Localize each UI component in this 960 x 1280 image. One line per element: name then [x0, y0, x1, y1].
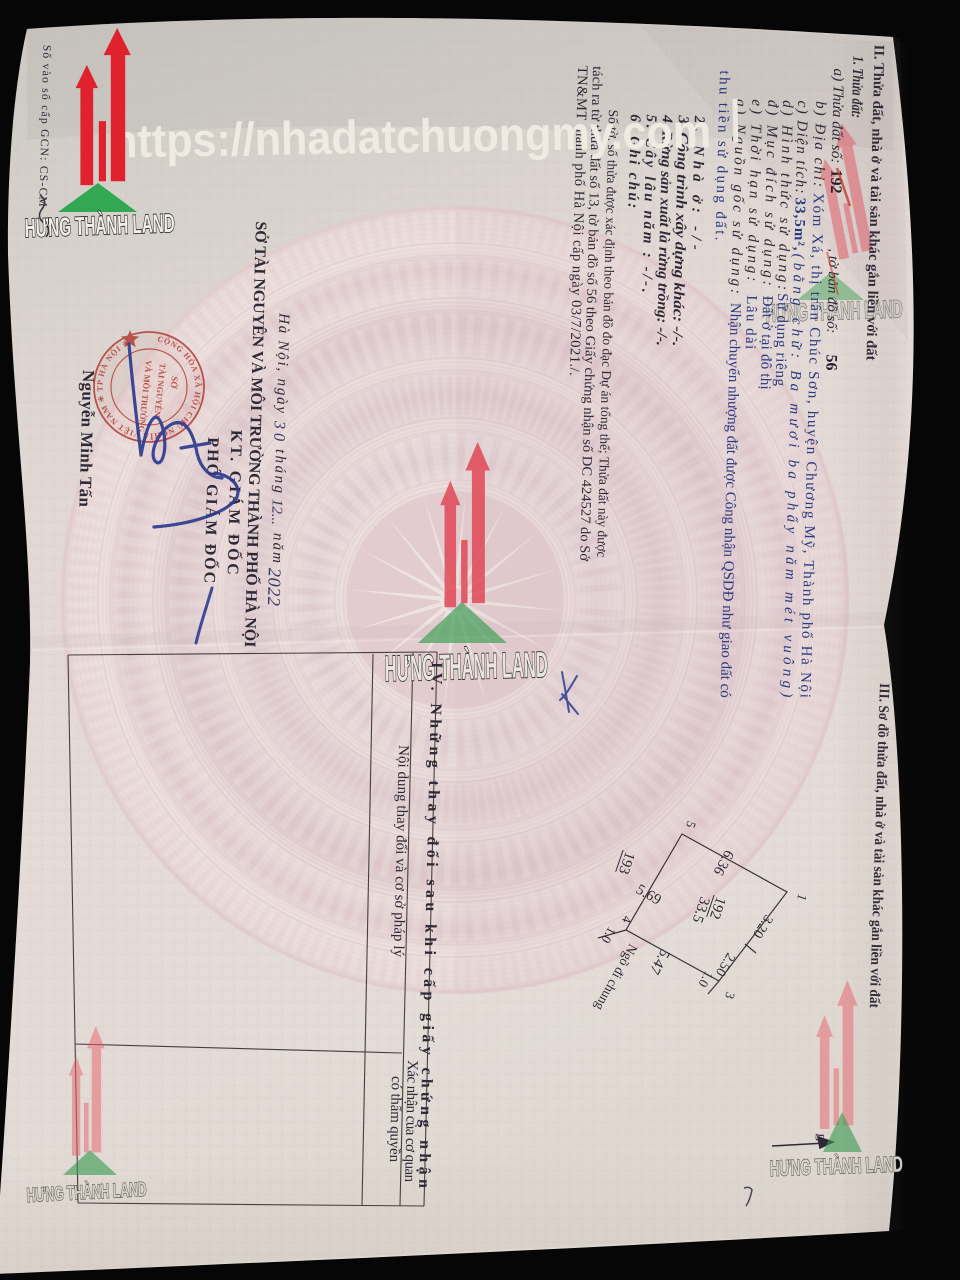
svg-text:B: B [812, 1133, 827, 1142]
svg-text:tháng: tháng [271, 449, 288, 494]
svg-text:HƯNG THÀNH LAND: HƯNG THÀNH LAND [384, 644, 548, 689]
svg-text:2022: 2022 [264, 568, 285, 607]
svg-text:năm: năm [269, 533, 286, 564]
svg-text:SỞ: SỞ [169, 376, 180, 390]
svg-text:có thẩm quyền: có thẩm quyền [386, 1076, 404, 1163]
svg-text:12...: 12... [268, 499, 285, 525]
svg-text:HƯNG THÀNH LAND: HƯNG THÀNH LAND [24, 208, 175, 243]
svg-text:Hà Nội, ngày: Hà Nội, ngày [273, 312, 292, 414]
svg-text:https://nhadatchuongmy.com: https://nhadatchuongmy.com [111, 104, 712, 167]
svg-text:Lâu dài: Lâu dài [742, 295, 759, 349]
